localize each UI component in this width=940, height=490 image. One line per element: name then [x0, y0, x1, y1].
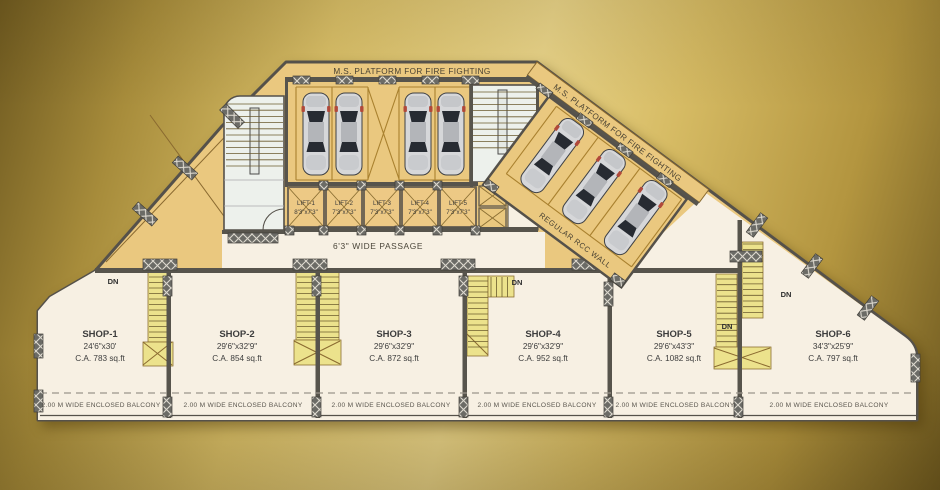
column	[312, 276, 321, 296]
balcony-label: 2.00 M WIDE ENCLOSED BALCONY	[477, 402, 596, 409]
lift-5-cell: LIFT-57'3"x7'3"	[440, 187, 476, 227]
lift-name: LIFT-5	[449, 200, 467, 207]
shop-size: 34'3"x25'9"	[813, 342, 853, 351]
shop-name: SHOP-2	[219, 329, 254, 340]
column	[336, 76, 353, 84]
shop-area: C.A. 1082 sq.ft	[647, 354, 702, 363]
column	[312, 397, 321, 417]
column	[285, 226, 294, 235]
shop-size: 29'6"x43'3"	[654, 342, 694, 351]
column	[34, 334, 43, 358]
lift-name: LIFT-4	[411, 200, 429, 207]
shop-size: 29'6"x32'9"	[217, 342, 257, 351]
column	[163, 276, 172, 296]
shop-name: SHOP-5	[656, 329, 692, 340]
shop-size: 29'6"x32'9"	[374, 342, 414, 351]
car-icon	[302, 93, 331, 175]
column	[319, 181, 328, 190]
shop-area: C.A. 872 sq.ft	[369, 354, 419, 363]
shop-name: SHOP-1	[82, 329, 118, 340]
column	[293, 259, 327, 270]
shop-name: SHOP-4	[525, 329, 561, 340]
down-label: DN	[781, 290, 792, 299]
lift-name: LIFT-1	[297, 200, 315, 207]
down-label: DN	[108, 277, 119, 286]
column	[730, 251, 762, 262]
lift-3-cell: LIFT-37'3"x7'3"	[364, 187, 400, 227]
lift-name: LIFT-2	[335, 200, 353, 207]
shop-area: C.A. 952 sq.ft	[518, 354, 568, 363]
shop-size: 29'6"x32'9"	[523, 342, 563, 351]
column	[422, 76, 439, 84]
balcony-label: 2.00 M WIDE ENCLOSED BALCONY	[769, 402, 888, 409]
column	[228, 233, 278, 243]
column	[911, 354, 920, 382]
balcony-label: 2.00 M WIDE ENCLOSED BALCONY	[183, 402, 302, 409]
column	[604, 397, 613, 417]
lift-size: 7'3"x7'3"	[370, 209, 394, 216]
car-icon	[335, 93, 364, 175]
column	[462, 76, 479, 84]
column	[734, 397, 743, 417]
column	[471, 226, 480, 235]
column	[433, 226, 442, 235]
lift-name: LIFT-3	[373, 200, 391, 207]
column	[319, 226, 328, 235]
lift-size: 7'3"x7'3"	[332, 209, 356, 216]
column	[143, 259, 177, 270]
column	[604, 282, 613, 306]
car-icon	[437, 93, 466, 175]
column	[433, 181, 442, 190]
column	[395, 226, 404, 235]
column	[293, 76, 310, 84]
fire-platform-label-top: M.S. PLATFORM FOR FIRE FIGHTING	[333, 67, 490, 76]
shop-area: C.A. 797 sq.ft	[808, 354, 858, 363]
down-label: DN	[722, 322, 733, 331]
column	[459, 276, 468, 296]
down-label: DN	[512, 278, 523, 287]
balcony-label: 2.00 M WIDE ENCLOSED BALCONY	[615, 402, 734, 409]
lift-size: 7'3"x7'3"	[446, 209, 470, 216]
column	[459, 397, 468, 417]
shop-name: SHOP-3	[376, 329, 411, 340]
shop-area: C.A. 854 sq.ft	[212, 354, 262, 363]
shop-size: 24'6"x30'	[84, 342, 117, 351]
shop-name: SHOP-6	[815, 329, 850, 340]
lift-1-cell: LIFT-18'3"x7'3"	[288, 187, 324, 227]
column	[163, 397, 172, 417]
column	[357, 181, 366, 190]
car-icon	[404, 93, 433, 175]
column	[379, 76, 396, 84]
lift-2-cell: LIFT-27'3"x7'3"	[326, 187, 362, 227]
lift-size: 8'3"x7'3"	[294, 209, 318, 216]
floor-plan: M.S. PLATFORM FOR FIRE FIGHTING LIFT-18'…	[0, 0, 940, 490]
column	[357, 226, 366, 235]
column	[441, 259, 475, 270]
shop-area: C.A. 783 sq.ft	[75, 354, 125, 363]
lift-bank: LIFT-18'3"x7'3"LIFT-27'3"x7'3"LIFT-37'3"…	[288, 187, 476, 227]
passage-label: 6'3" WIDE PASSAGE	[333, 241, 423, 251]
balcony-label: 2.00 M WIDE ENCLOSED BALCONY	[331, 402, 450, 409]
lift-size: 7'3"x7'3"	[408, 209, 432, 216]
column	[395, 181, 404, 190]
lift-4-cell: LIFT-47'3"x7'3"	[402, 187, 438, 227]
balcony-label: 2.00 M WIDE ENCLOSED BALCONY	[41, 402, 160, 409]
